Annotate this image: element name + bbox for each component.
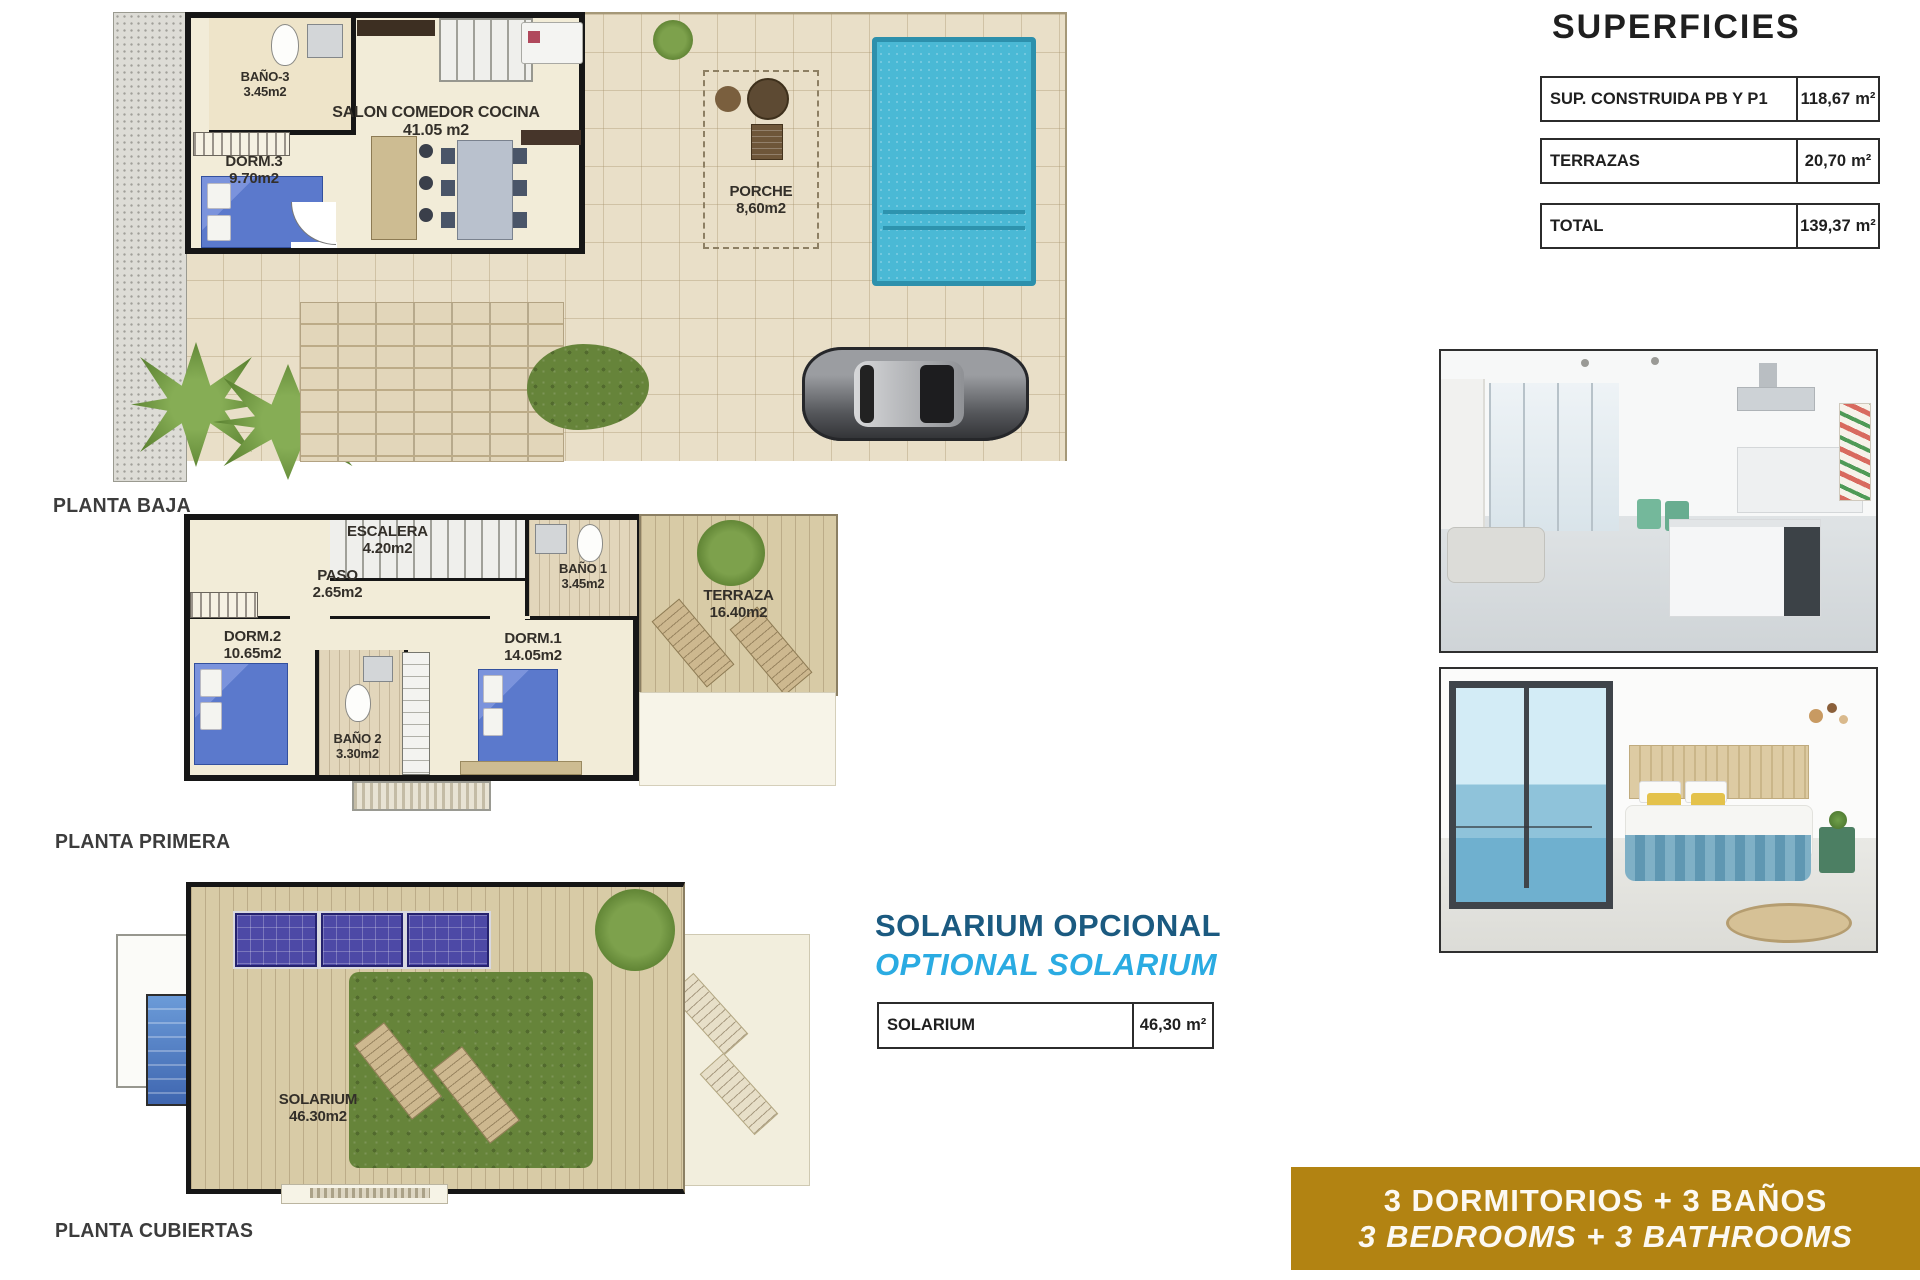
sofa-pillow-graphic xyxy=(528,31,540,43)
plant-graphic xyxy=(595,889,675,971)
floorplan-planta-primera: TERRAZA 16.40m2 ESCALERA 4.20m2 BAÑO 1 3… xyxy=(184,514,834,824)
wall-art-shape xyxy=(1839,403,1871,501)
row-unit: m² xyxy=(1855,90,1875,109)
ceiling-spot-shape xyxy=(1651,357,1659,365)
photo-bedroom xyxy=(1439,667,1878,953)
car-window-graphic xyxy=(920,365,954,423)
row-value: 118,67 xyxy=(1801,90,1851,109)
tree-graphic xyxy=(697,520,765,586)
porch-table-graphic xyxy=(747,78,789,120)
solar-panel-graphic xyxy=(235,913,317,967)
chair-graphic xyxy=(441,212,455,228)
room-label: BAÑO 1 xyxy=(533,562,633,577)
caption-planta-primera: PLANTA PRIMERA xyxy=(55,831,230,854)
lower-roof-area xyxy=(639,692,836,786)
sink-graphic xyxy=(535,524,567,554)
car-window-graphic xyxy=(860,365,874,423)
plant-graphic xyxy=(653,20,693,60)
wall-decor-shape xyxy=(1827,703,1837,713)
row-label: TERRAZAS xyxy=(1542,140,1798,182)
superficies-row-total: TOTAL 139,37m² xyxy=(1540,203,1880,249)
room-label: DORM.3 xyxy=(199,154,309,171)
room-label: DORM.1 xyxy=(478,631,588,648)
room-bano1: BAÑO 1 3.45m2 xyxy=(525,520,637,620)
wall-decor-shape xyxy=(1809,709,1823,723)
sofa-shape xyxy=(1447,527,1545,583)
side-terrace-area xyxy=(678,934,810,1186)
ceiling-spot-shape xyxy=(1581,359,1589,367)
building-planta-baja: BAÑO-3 3.45m2 DORM.3 9. xyxy=(185,12,585,254)
driveway-graphic xyxy=(300,302,564,462)
room-dorm1: DORM.1 14.05m2 xyxy=(430,619,633,775)
rug-graphic xyxy=(460,761,582,775)
row-label: SUP. CONSTRUIDA PB Y P1 xyxy=(1542,78,1798,120)
banner-line-es: 3 DORMITORIOS + 3 BAÑOS xyxy=(1291,1183,1920,1219)
ledge-mat-graphic xyxy=(310,1188,430,1198)
stairs-graphic xyxy=(439,18,533,82)
chair-graphic xyxy=(441,180,455,196)
pool-lane-line xyxy=(883,226,1025,230)
solarium-heading-es: SOLARIUM OPCIONAL xyxy=(875,908,1221,944)
superficies-title: SUPERFICIES xyxy=(1552,8,1801,47)
wardrobe-graphic xyxy=(190,592,258,618)
room-bano2: BAÑO 2 3.30m2 xyxy=(315,650,408,775)
pillow-graphic xyxy=(200,669,222,697)
chair-graphic xyxy=(513,212,527,228)
sun-lounger-graphic xyxy=(432,1046,520,1143)
caption-planta-baja: PLANTA BAJA xyxy=(53,495,191,518)
hood-chimney-shape xyxy=(1759,363,1777,389)
stool-graphic xyxy=(419,208,433,222)
chair-graphic xyxy=(441,148,455,164)
superficies-row-terrazas: TERRAZAS 20,70m² xyxy=(1540,138,1880,184)
lower-ledge-area xyxy=(281,1184,448,1204)
room-area: 41.05 m2 xyxy=(331,122,541,140)
green-chair-shape xyxy=(1637,499,1661,529)
toilet-graphic xyxy=(577,524,603,562)
room-area: 3.45m2 xyxy=(533,577,633,592)
window-mullion-shape xyxy=(1524,688,1529,888)
floorplan-planta-baja: PORCHE 8,60m2 BAÑO-3 3.45m2 xyxy=(113,12,1065,480)
kitchen-counter-graphic xyxy=(357,20,435,36)
room-area: 3.30m2 xyxy=(319,747,396,762)
swimming-pool-graphic xyxy=(872,37,1036,286)
nightstand-shape xyxy=(1819,827,1855,873)
pillow-graphic xyxy=(483,708,503,736)
window-wall-shape xyxy=(1489,383,1619,531)
room-area: 2.65m2 xyxy=(285,585,390,602)
island-side-shape xyxy=(1784,520,1820,616)
shelf-wall-shape xyxy=(1441,379,1485,529)
porch-chair-graphic xyxy=(715,86,741,112)
toilet-graphic xyxy=(345,684,371,722)
room-terraza: TERRAZA 16.40m2 xyxy=(639,514,838,696)
sun-lounger-graphic xyxy=(700,1053,779,1135)
room-label: PASO xyxy=(285,568,390,585)
toilet-graphic xyxy=(271,24,299,66)
room-label: BAÑO 2 xyxy=(319,732,396,747)
pillow-graphic xyxy=(200,702,222,730)
sofa-graphic xyxy=(521,22,583,64)
bed-graphic xyxy=(194,663,288,765)
room-label: SOLARIUM xyxy=(253,1092,383,1109)
wall-decor-shape xyxy=(1839,715,1848,724)
solarium-lawn-graphic xyxy=(349,972,593,1168)
stool-graphic xyxy=(419,144,433,158)
room-area: 3.45m2 xyxy=(215,85,315,100)
summary-banner: 3 DORMITORIOS + 3 BAÑOS 3 BEDROOMS + 3 B… xyxy=(1291,1167,1920,1270)
room-label: TERRAZA xyxy=(666,588,811,605)
dining-table-graphic xyxy=(457,140,513,240)
hood-shape xyxy=(1737,387,1815,411)
row-value: 20,70 xyxy=(1805,152,1846,171)
solar-panel-graphic xyxy=(321,913,403,967)
entry-mat-graphic xyxy=(352,781,491,811)
porch-chair-graphic xyxy=(751,124,783,160)
row-unit: m² xyxy=(1856,217,1876,236)
chair-graphic xyxy=(513,148,527,164)
room-label: PORCHE xyxy=(713,184,809,201)
kitchen-island-graphic xyxy=(371,136,417,240)
room-area: 9.70m2 xyxy=(199,171,309,188)
room-area: 16.40m2 xyxy=(666,605,811,622)
pillow-graphic xyxy=(483,675,503,703)
room-label: DORM.2 xyxy=(200,629,305,646)
sink-graphic xyxy=(363,656,393,682)
plant-shape xyxy=(1829,811,1847,829)
row-value: 46,30 xyxy=(1140,1016,1181,1035)
sink-graphic xyxy=(307,24,343,58)
floorplan-planta-cubiertas: SOLARIUM 46.30m2 xyxy=(116,882,808,1224)
kitchen-island-shape xyxy=(1669,519,1821,617)
closet-graphic xyxy=(402,652,430,775)
room-label: BAÑO-3 xyxy=(215,70,315,85)
stool-graphic xyxy=(419,176,433,190)
room-label: SALON COMEDOR COCINA xyxy=(331,104,541,122)
solarium-table-row: SOLARIUM 46,30m² xyxy=(877,1002,1214,1049)
room-solarium: SOLARIUM 46.30m2 xyxy=(186,882,685,1194)
row-label: SOLARIUM xyxy=(879,1004,1134,1047)
window-shape xyxy=(1449,681,1613,909)
row-label: TOTAL xyxy=(1542,205,1798,247)
row-value: 139,37 xyxy=(1800,217,1850,236)
blanket-shape xyxy=(1625,835,1811,881)
brochure-page: { "superficies": { "title": "SUPERFICIES… xyxy=(0,0,1920,1280)
island-top-shape xyxy=(1670,520,1820,527)
room-area: 14.05m2 xyxy=(478,648,588,665)
room-area: 8,60m2 xyxy=(713,201,809,218)
car-graphic xyxy=(802,347,1029,441)
pillow-graphic xyxy=(207,215,231,241)
balcony-rail-shape xyxy=(1456,826,1592,828)
room-dorm2: DORM.2 10.65m2 xyxy=(190,619,315,775)
chair-graphic xyxy=(513,180,527,196)
round-rug-shape xyxy=(1726,903,1852,943)
superficies-row-construida: SUP. CONSTRUIDA PB Y P1 118,67m² xyxy=(1540,76,1880,122)
bed-graphic xyxy=(478,669,558,771)
room-area: 46.30m2 xyxy=(253,1109,383,1126)
solar-panel-graphic xyxy=(407,913,489,967)
building-planta-primera: ESCALERA 4.20m2 BAÑO 1 3.45m2 PASO 2.65m… xyxy=(184,514,639,781)
pool-lane-line xyxy=(883,210,1025,214)
room-label: ESCALERA xyxy=(320,524,455,541)
banner-line-en: 3 BEDROOMS + 3 BATHROOMS xyxy=(1291,1219,1920,1255)
room-porche: PORCHE 8,60m2 xyxy=(703,70,819,249)
row-unit: m² xyxy=(1851,152,1871,171)
caption-planta-cubiertas: PLANTA CUBIERTAS xyxy=(55,1220,253,1243)
row-unit: m² xyxy=(1186,1016,1206,1035)
photo-living-kitchen xyxy=(1439,349,1878,653)
room-area: 10.65m2 xyxy=(200,646,305,663)
room-area: 4.20m2 xyxy=(320,541,455,558)
solarium-heading-en: OPTIONAL SOLARIUM xyxy=(875,947,1217,983)
